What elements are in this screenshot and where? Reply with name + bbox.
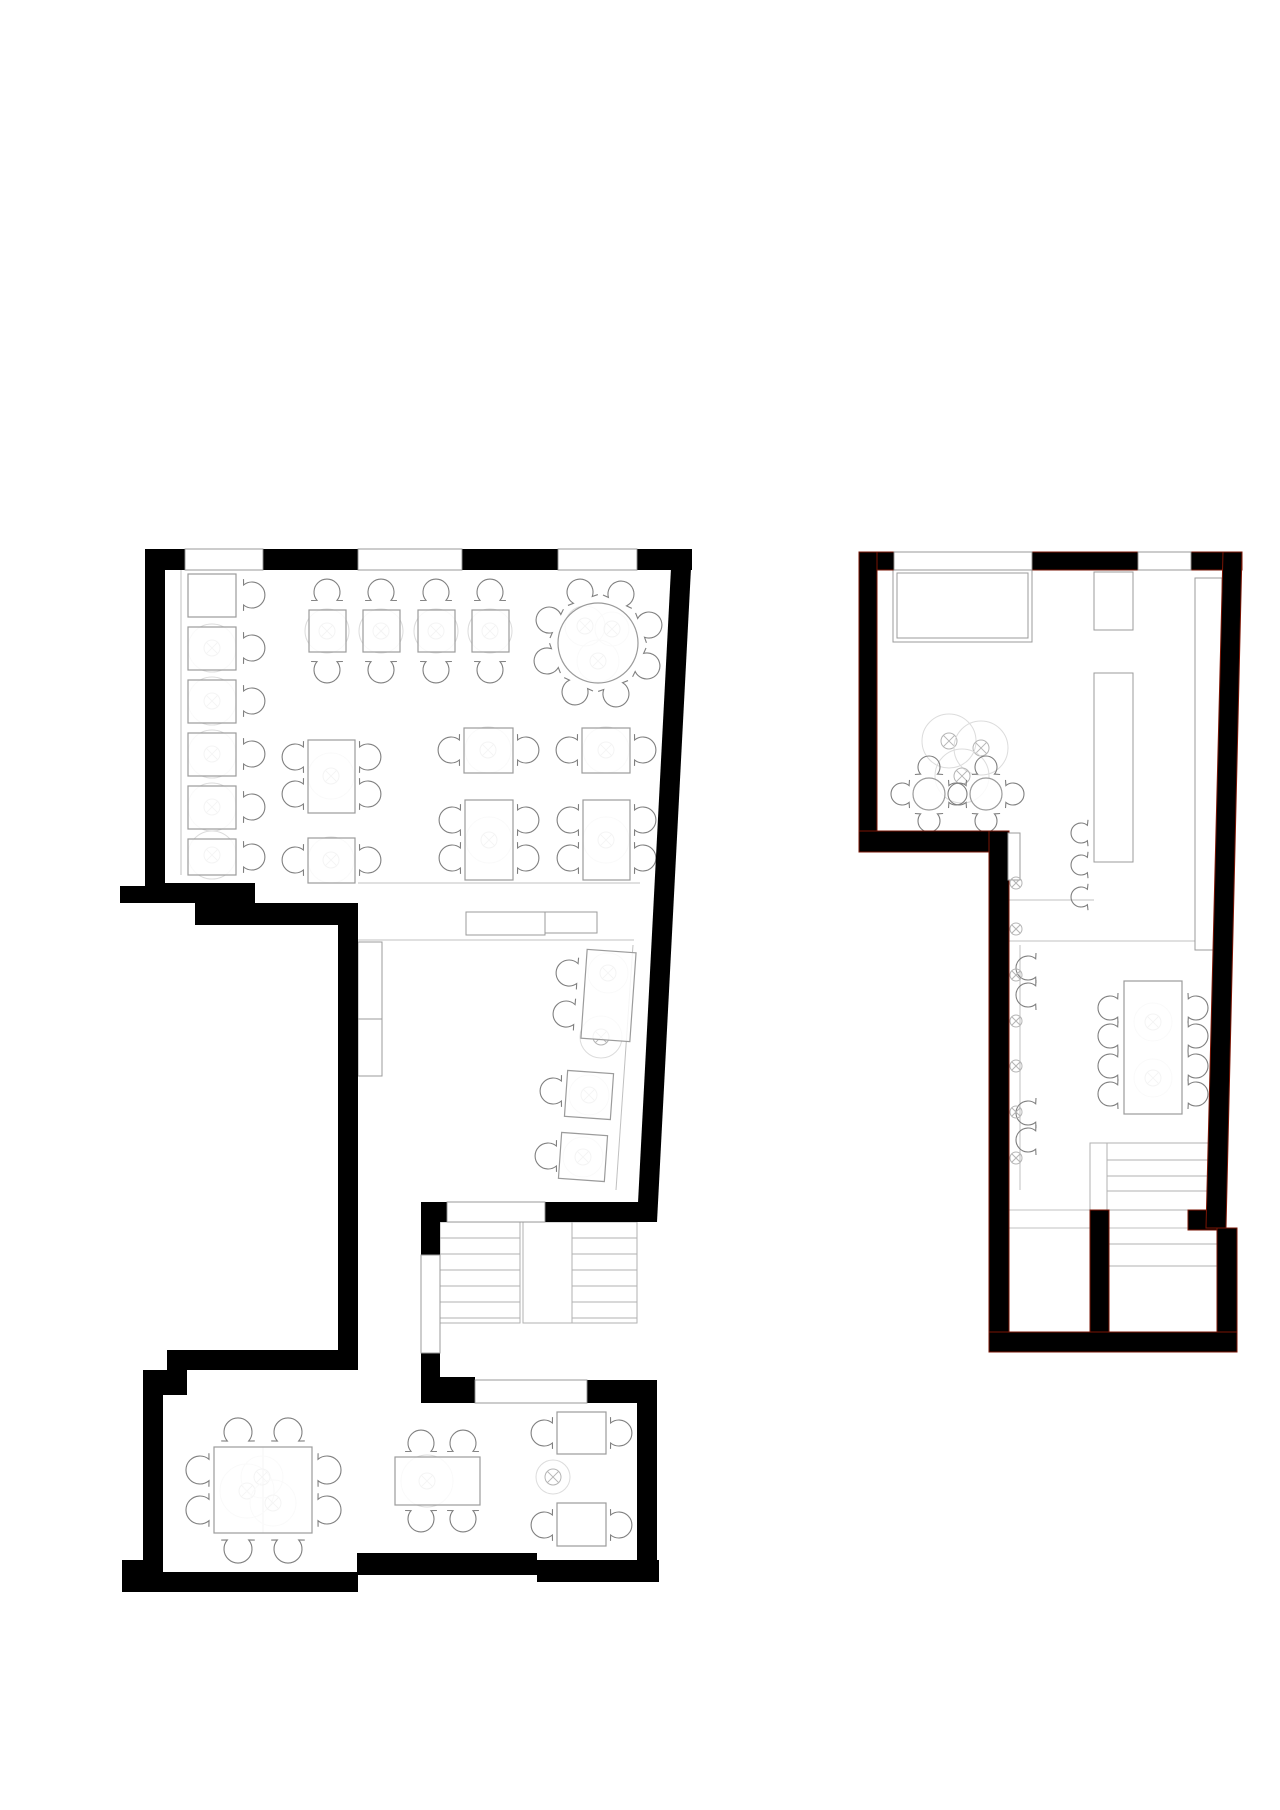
floor-plan-upper xyxy=(859,552,1242,1352)
chair xyxy=(271,1418,305,1441)
chair xyxy=(555,956,579,989)
table xyxy=(188,733,236,776)
wall xyxy=(263,549,358,570)
chair xyxy=(535,1140,556,1172)
floorplan-canvas xyxy=(0,0,1280,1810)
chair xyxy=(244,579,265,611)
table xyxy=(558,1132,607,1181)
chair xyxy=(244,738,265,770)
chair xyxy=(405,1430,437,1451)
chair xyxy=(282,778,303,810)
wall xyxy=(989,1332,1237,1352)
ceiling-light xyxy=(954,721,1008,775)
door-opening xyxy=(421,1255,440,1353)
chair xyxy=(557,804,578,836)
wall xyxy=(421,1377,475,1403)
chair xyxy=(221,1418,255,1441)
chair xyxy=(529,643,560,680)
chair xyxy=(405,1511,437,1532)
wall xyxy=(1032,552,1138,570)
chair xyxy=(186,1493,209,1527)
wall xyxy=(421,1222,440,1255)
ceiling-light xyxy=(536,1460,570,1494)
table xyxy=(581,949,636,1041)
window xyxy=(358,549,462,570)
chair xyxy=(244,841,265,873)
table xyxy=(465,800,513,880)
wall xyxy=(587,1380,657,1403)
chair xyxy=(271,1540,305,1563)
wall xyxy=(167,1350,358,1370)
chair xyxy=(221,1540,255,1563)
chair xyxy=(635,804,656,836)
chair xyxy=(1098,1079,1118,1109)
chair xyxy=(1071,884,1088,910)
wall xyxy=(462,549,558,570)
wall xyxy=(1217,1228,1237,1332)
chair xyxy=(282,844,303,876)
chair xyxy=(1016,980,1036,1010)
table xyxy=(308,740,355,813)
table xyxy=(557,1503,606,1546)
window xyxy=(1138,552,1191,570)
counter xyxy=(1094,572,1133,630)
table xyxy=(472,610,509,652)
table-round xyxy=(970,778,1002,810)
chair xyxy=(318,1493,341,1527)
table xyxy=(308,838,355,883)
chair xyxy=(1098,1051,1118,1081)
window xyxy=(185,549,263,570)
chair xyxy=(1188,1079,1208,1109)
table xyxy=(564,1070,613,1119)
chair xyxy=(1071,820,1088,846)
chair xyxy=(891,780,910,808)
wall xyxy=(859,552,877,852)
counter xyxy=(897,573,1028,638)
wall xyxy=(859,831,1008,852)
chair xyxy=(633,648,666,686)
wall xyxy=(145,549,165,903)
chair xyxy=(439,842,460,874)
window xyxy=(475,1380,587,1403)
table xyxy=(582,728,630,773)
chair xyxy=(447,1430,479,1451)
chair xyxy=(531,600,564,638)
table xyxy=(214,1447,312,1533)
wall xyxy=(989,831,1009,1332)
chair xyxy=(531,1509,552,1541)
chair xyxy=(972,814,1000,833)
bench xyxy=(358,1019,382,1076)
chair xyxy=(636,606,667,643)
wall xyxy=(143,1395,163,1572)
floorplan-svg xyxy=(0,0,1280,1810)
table xyxy=(188,786,236,829)
counter xyxy=(466,912,545,935)
chair xyxy=(311,662,343,683)
chair xyxy=(531,1417,552,1449)
counter xyxy=(545,912,597,933)
chair xyxy=(540,1075,561,1107)
table-round xyxy=(558,603,638,683)
chair xyxy=(1188,1021,1208,1051)
chair xyxy=(552,997,576,1030)
chair xyxy=(1098,993,1118,1023)
window xyxy=(558,549,637,570)
chair xyxy=(438,734,459,766)
chair xyxy=(972,756,1000,775)
chair xyxy=(915,814,943,833)
table xyxy=(188,574,236,617)
chair xyxy=(556,734,577,766)
table xyxy=(188,627,236,670)
chair xyxy=(186,1453,209,1487)
table xyxy=(395,1457,480,1505)
chair xyxy=(244,632,265,664)
chair xyxy=(474,662,506,683)
bench xyxy=(358,942,382,1019)
table xyxy=(309,610,346,652)
chair xyxy=(518,734,539,766)
table xyxy=(464,728,513,773)
floor-plan-ground xyxy=(120,549,692,1592)
chair xyxy=(282,741,303,773)
chair xyxy=(1071,852,1088,878)
stair-flight xyxy=(572,1222,637,1323)
table xyxy=(583,800,630,880)
wall xyxy=(143,1370,187,1395)
table xyxy=(363,610,400,652)
chair xyxy=(557,842,578,874)
wall xyxy=(338,903,358,1352)
table xyxy=(418,610,455,652)
chair xyxy=(474,579,506,600)
chair xyxy=(1016,1098,1036,1128)
chair xyxy=(360,778,381,810)
chair xyxy=(598,681,635,712)
chair xyxy=(439,804,460,836)
table xyxy=(188,680,236,723)
chair xyxy=(561,574,598,605)
chair xyxy=(360,741,381,773)
wall xyxy=(421,1202,447,1222)
window xyxy=(447,1202,545,1222)
chair xyxy=(1016,1125,1036,1155)
chair xyxy=(635,734,656,766)
wall xyxy=(1090,1210,1109,1332)
counter xyxy=(1094,673,1133,862)
chair xyxy=(318,1453,341,1487)
chair xyxy=(635,842,656,874)
chair xyxy=(244,791,265,823)
staircase xyxy=(440,1222,637,1323)
ceiling-light xyxy=(922,714,976,768)
table-round xyxy=(913,778,945,810)
wall-light xyxy=(1010,923,1022,935)
wall xyxy=(357,1553,537,1575)
chair xyxy=(611,1509,632,1541)
chair xyxy=(365,579,397,600)
chair xyxy=(1006,780,1025,808)
wall xyxy=(637,1403,657,1570)
chair xyxy=(555,678,593,711)
stair-flight xyxy=(440,1222,520,1323)
door-opening xyxy=(1008,833,1020,880)
wall xyxy=(195,903,338,925)
chair xyxy=(365,662,397,683)
chair xyxy=(420,579,452,600)
chair xyxy=(611,1417,632,1449)
wall xyxy=(122,1572,358,1592)
table xyxy=(557,1412,606,1454)
chair xyxy=(1188,1051,1208,1081)
wall xyxy=(145,883,255,903)
table xyxy=(1124,981,1182,1114)
chair xyxy=(447,1511,479,1532)
chair xyxy=(1188,993,1208,1023)
chair xyxy=(244,685,265,717)
table xyxy=(188,839,236,875)
chair xyxy=(518,842,539,874)
stair-flight xyxy=(523,1222,572,1323)
chair xyxy=(360,844,381,876)
chair xyxy=(311,579,343,600)
window xyxy=(894,552,1032,570)
chair xyxy=(603,576,641,609)
wall xyxy=(120,886,147,903)
chair xyxy=(1098,1021,1118,1051)
chair xyxy=(518,804,539,836)
chair xyxy=(420,662,452,683)
